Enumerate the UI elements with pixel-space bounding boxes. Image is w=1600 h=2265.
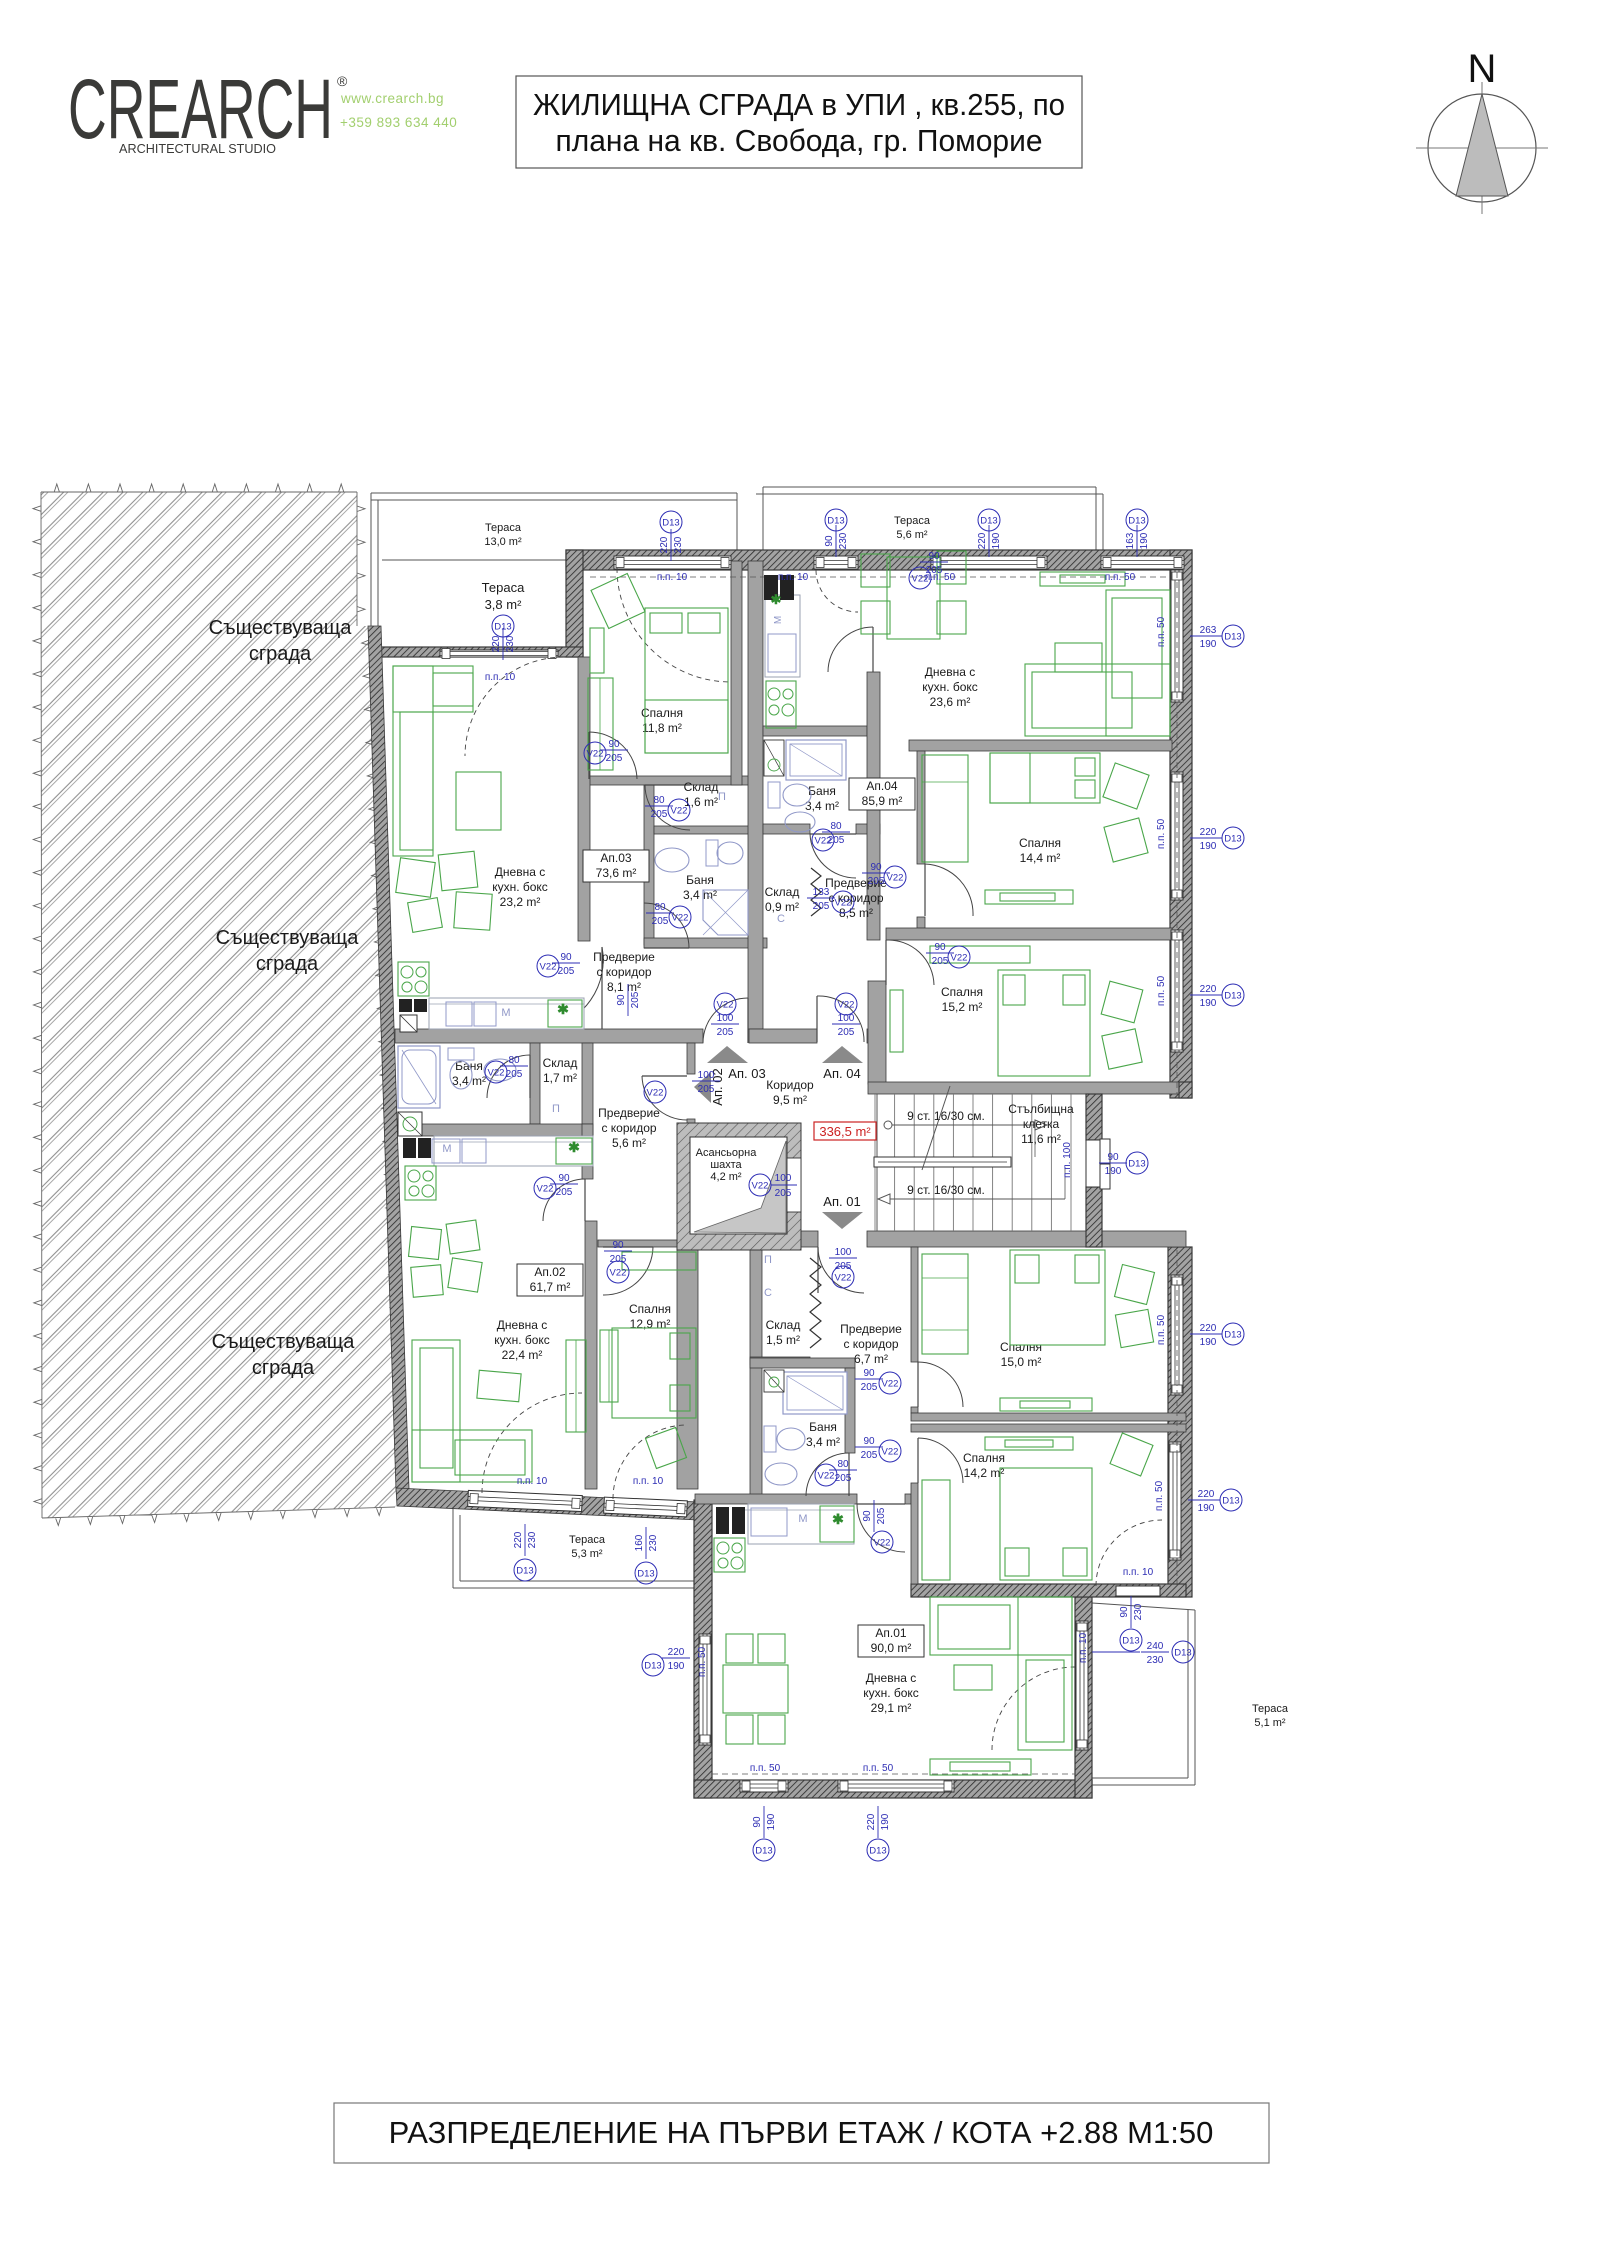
svg-text:D13: D13 — [1122, 1636, 1139, 1647]
svg-text:РАЗПРЕДЕЛЕНИЕ НА ПЪРВИ ЕТАЖ /: РАЗПРЕДЕЛЕНИЕ НА ПЪРВИ ЕТАЖ / КОТА +2.88… — [389, 2115, 1214, 2150]
svg-text:M: M — [798, 1513, 807, 1525]
svg-text:100: 100 — [775, 1173, 792, 1184]
svg-text:220: 220 — [1200, 984, 1217, 995]
svg-text:Съществуваща: Съществуваща — [209, 617, 353, 639]
svg-text:V22: V22 — [882, 1379, 899, 1390]
svg-text:D13: D13 — [1224, 834, 1241, 845]
svg-text:9 ст. 16/30 см.: 9 ст. 16/30 см. — [907, 1109, 985, 1123]
svg-text:90: 90 — [612, 1240, 624, 1251]
svg-text:Спалня: Спалня — [1000, 1340, 1042, 1354]
svg-text:100: 100 — [835, 1247, 852, 1258]
svg-text:3,4 m²: 3,4 m² — [805, 799, 839, 813]
svg-text:11,8 m²: 11,8 m² — [642, 721, 682, 735]
svg-text:1,5 m²: 1,5 m² — [766, 1333, 800, 1347]
svg-text:ЖИЛИЩНА СГРАДА в УПИ , кв.255,: ЖИЛИЩНА СГРАДА в УПИ , кв.255, по — [533, 87, 1065, 122]
svg-text:90: 90 — [558, 1173, 570, 1184]
svg-text:Склад: Склад — [684, 780, 719, 794]
svg-text:73,6 m²: 73,6 m² — [596, 866, 637, 880]
svg-text:205: 205 — [876, 1507, 887, 1524]
svg-text:п.п. 10: п.п. 10 — [778, 572, 809, 583]
svg-text:с коридор: с коридор — [596, 965, 651, 979]
svg-text:5,6 m²: 5,6 m² — [896, 529, 928, 541]
svg-text:205: 205 — [506, 1069, 523, 1080]
svg-text:12,9 m²: 12,9 m² — [630, 1317, 671, 1331]
svg-text:ARCHITECTURAL STUDIO: ARCHITECTURAL STUDIO — [119, 141, 276, 156]
svg-text:11,6 m²: 11,6 m² — [1021, 1132, 1061, 1146]
svg-text:205: 205 — [698, 1084, 715, 1095]
svg-text:шахта: шахта — [710, 1159, 742, 1171]
svg-text:205: 205 — [558, 966, 575, 977]
svg-text:90: 90 — [824, 535, 835, 547]
svg-text:M: M — [442, 1143, 451, 1155]
svg-text:Ап.03: Ап.03 — [600, 851, 632, 865]
svg-text:336,5 m²: 336,5 m² — [819, 1124, 871, 1139]
svg-text:D13: D13 — [516, 1566, 533, 1577]
svg-text:Спалня: Спалня — [629, 1302, 671, 1316]
svg-text:V22: V22 — [912, 574, 929, 585]
svg-text:D13: D13 — [1174, 1648, 1191, 1659]
svg-text:Склад: Склад — [543, 1056, 578, 1070]
svg-text:С: С — [777, 913, 785, 925]
svg-text:Ап. 03: Ап. 03 — [728, 1066, 765, 1081]
svg-text:Ап. 04: Ап. 04 — [823, 1066, 860, 1081]
svg-text:3,8 m²: 3,8 m² — [485, 597, 523, 612]
svg-text:Асансьорна: Асансьорна — [696, 1147, 758, 1159]
svg-text:90: 90 — [934, 942, 946, 953]
svg-text:Предверие: Предверие — [593, 950, 655, 964]
svg-text:190: 190 — [1200, 1337, 1217, 1348]
svg-text:230: 230 — [505, 635, 516, 652]
svg-text:190: 190 — [1105, 1166, 1122, 1177]
svg-text:205: 205 — [652, 916, 669, 927]
svg-text:220: 220 — [659, 536, 670, 553]
svg-text:с коридор: с коридор — [601, 1121, 656, 1135]
svg-text:сграда: сграда — [249, 643, 312, 665]
svg-text:205: 205 — [861, 1450, 878, 1461]
svg-text:230: 230 — [648, 1534, 659, 1551]
svg-text:14,2 m²: 14,2 m² — [964, 1466, 1005, 1480]
svg-text:240: 240 — [1147, 1641, 1164, 1652]
svg-text:Стълбищна: Стълбищна — [1008, 1102, 1074, 1116]
svg-text:13,0 m²: 13,0 m² — [484, 536, 522, 548]
svg-text:V22: V22 — [818, 1471, 835, 1482]
svg-text:230: 230 — [1147, 1655, 1164, 1666]
svg-text:90: 90 — [560, 952, 572, 963]
svg-text:кухн. бокс: кухн. бокс — [863, 1686, 919, 1700]
svg-text:кухн. бокс: кухн. бокс — [922, 680, 978, 694]
svg-text:205: 205 — [630, 991, 641, 1008]
svg-text:230: 230 — [527, 1531, 538, 1548]
svg-text:190: 190 — [1198, 1503, 1215, 1514]
svg-text:V22: V22 — [887, 873, 904, 884]
svg-text:190: 190 — [668, 1661, 685, 1672]
svg-text:M: M — [501, 1007, 510, 1019]
svg-text:220: 220 — [1198, 1489, 1215, 1500]
svg-text:Спалня: Спалня — [941, 985, 983, 999]
svg-text:190: 190 — [1200, 639, 1217, 650]
svg-text:Баня: Баня — [686, 873, 714, 887]
svg-text:230: 230 — [673, 536, 684, 553]
svg-text:сграда: сграда — [256, 953, 319, 975]
svg-text:14,4 m²: 14,4 m² — [1020, 851, 1061, 865]
svg-text:190: 190 — [1139, 532, 1150, 549]
svg-text:V22: V22 — [752, 1181, 769, 1192]
svg-text:V22: V22 — [815, 836, 832, 847]
svg-text:90: 90 — [863, 1368, 875, 1379]
svg-text:Дневна с: Дневна с — [925, 665, 975, 679]
svg-text:1,7 m²: 1,7 m² — [543, 1071, 577, 1085]
svg-text:+359 893 634 440: +359 893 634 440 — [340, 115, 457, 130]
svg-text:V22: V22 — [672, 913, 689, 924]
svg-text:п.п. 50: п.п. 50 — [863, 1763, 894, 1774]
svg-text:80: 80 — [654, 902, 666, 913]
svg-text:133: 133 — [813, 887, 830, 898]
svg-text:п.п. 10: п.п. 10 — [1078, 1632, 1089, 1663]
svg-text:п.п. 50: п.п. 50 — [1105, 572, 1136, 583]
svg-text:5,3 m²: 5,3 m² — [571, 1548, 603, 1560]
svg-text:Баня: Баня — [809, 1420, 837, 1434]
svg-text:✱: ✱ — [557, 1001, 569, 1017]
svg-text:90: 90 — [1119, 1606, 1130, 1618]
svg-text:90: 90 — [1107, 1152, 1119, 1163]
svg-text:п.п. 10: п.п. 10 — [657, 572, 688, 583]
svg-text:Баня: Баня — [808, 784, 836, 798]
svg-text:90: 90 — [608, 739, 620, 750]
svg-text:Ап.01: Ап.01 — [875, 1626, 907, 1640]
svg-text:205: 205 — [717, 1027, 734, 1038]
svg-text:Дневна с: Дневна с — [497, 1318, 547, 1332]
svg-text:230: 230 — [1133, 1603, 1144, 1620]
svg-text:п.п. 50: п.п. 50 — [1156, 975, 1167, 1006]
svg-text:61,7 m²: 61,7 m² — [530, 1280, 571, 1294]
svg-text:205: 205 — [775, 1188, 792, 1199]
svg-text:29,1 m²: 29,1 m² — [871, 1701, 912, 1715]
svg-text:220: 220 — [1200, 1323, 1217, 1334]
svg-text:15,0 m²: 15,0 m² — [1001, 1355, 1042, 1369]
svg-text:M: M — [773, 616, 784, 624]
svg-text:кухн. бокс: кухн. бокс — [492, 880, 548, 894]
svg-text:205: 205 — [813, 901, 830, 912]
svg-text:Дневна с: Дневна с — [495, 865, 545, 879]
svg-text:п.п. 10: п.п. 10 — [517, 1476, 548, 1487]
svg-text:V22: V22 — [671, 806, 688, 817]
svg-text:205: 205 — [868, 876, 885, 887]
svg-text:п.п. 50: п.п. 50 — [750, 1763, 781, 1774]
svg-text:220: 220 — [1200, 827, 1217, 838]
svg-text:П: П — [718, 791, 726, 803]
svg-text:90,0 m²: 90,0 m² — [871, 1641, 912, 1655]
svg-text:✱: ✱ — [832, 1511, 844, 1527]
svg-text:9 ст. 16/30 см.: 9 ст. 16/30 см. — [907, 1183, 985, 1197]
svg-text:220: 220 — [866, 1813, 877, 1830]
svg-text:205: 205 — [838, 1027, 855, 1038]
svg-text:190: 190 — [1200, 998, 1217, 1009]
svg-text:Ап. 01: Ап. 01 — [823, 1194, 860, 1209]
svg-text:П: П — [552, 1103, 560, 1115]
svg-text:3,4 m²: 3,4 m² — [806, 1435, 840, 1449]
svg-text:15,2 m²: 15,2 m² — [942, 1000, 983, 1014]
svg-text:сграда: сграда — [252, 1357, 315, 1379]
svg-text:V22: V22 — [647, 1088, 664, 1099]
svg-text:D13: D13 — [755, 1846, 772, 1857]
svg-text:п.п. 50: п.п. 50 — [1154, 1480, 1165, 1511]
svg-text:D13: D13 — [827, 516, 844, 527]
svg-text:V22: V22 — [835, 1273, 852, 1284]
svg-text:90: 90 — [616, 994, 627, 1006]
svg-text:Склад: Склад — [766, 1318, 801, 1332]
svg-text:190: 190 — [880, 1813, 891, 1830]
svg-text:205: 205 — [861, 1382, 878, 1393]
svg-text:Коридор: Коридор — [766, 1078, 814, 1092]
svg-text:V22: V22 — [610, 1268, 627, 1279]
svg-text:D13: D13 — [644, 1661, 661, 1672]
svg-text:D13: D13 — [1128, 1159, 1145, 1170]
svg-text:6,7 m²: 6,7 m² — [854, 1352, 888, 1366]
svg-text:D13: D13 — [980, 516, 997, 527]
svg-text:85,9 m²: 85,9 m² — [862, 794, 903, 808]
svg-text:Спалня: Спалня — [963, 1451, 1005, 1465]
svg-text:190: 190 — [1200, 841, 1217, 852]
svg-text:Тераса: Тераса — [1252, 1703, 1289, 1715]
svg-text:9,5 m²: 9,5 m² — [773, 1093, 807, 1107]
svg-text:3,4 m²: 3,4 m² — [452, 1074, 486, 1088]
svg-text:Тераса: Тераса — [482, 580, 525, 595]
svg-text:23,6 m²: 23,6 m² — [930, 695, 971, 709]
svg-text:п.п. 10: п.п. 10 — [485, 672, 516, 683]
svg-text:Тераса: Тераса — [894, 515, 931, 527]
svg-text:Тераса: Тераса — [485, 522, 522, 534]
svg-text:D13: D13 — [637, 1569, 654, 1580]
svg-text:V22: V22 — [835, 898, 852, 909]
svg-text:205: 205 — [932, 956, 949, 967]
svg-text:4,2 m²: 4,2 m² — [710, 1171, 742, 1183]
svg-text:160: 160 — [634, 1534, 645, 1551]
svg-text:5,6 m²: 5,6 m² — [612, 1136, 646, 1150]
svg-text:V22: V22 — [838, 1000, 855, 1011]
svg-text:80: 80 — [837, 1459, 849, 1470]
svg-text:D13: D13 — [1222, 1496, 1239, 1507]
svg-text:100: 100 — [698, 1070, 715, 1081]
svg-text:Спалня: Спалня — [641, 706, 683, 720]
svg-text:80: 80 — [508, 1055, 520, 1066]
svg-text:D13: D13 — [1224, 1330, 1241, 1341]
svg-text:220: 220 — [491, 635, 502, 652]
svg-text:190: 190 — [766, 1813, 777, 1830]
svg-text:V22: V22 — [717, 1000, 734, 1011]
svg-text:220: 220 — [668, 1647, 685, 1658]
svg-text:П: П — [764, 1254, 772, 1266]
svg-text:Дневна с: Дневна с — [866, 1671, 916, 1685]
svg-text:90: 90 — [862, 1510, 873, 1522]
svg-text:Предверие: Предверие — [598, 1106, 660, 1120]
svg-text:V22: V22 — [882, 1447, 899, 1458]
svg-text:205: 205 — [556, 1187, 573, 1198]
svg-text:23,2 m²: 23,2 m² — [500, 895, 541, 909]
svg-text:С: С — [764, 1287, 772, 1299]
svg-text:230: 230 — [838, 532, 849, 549]
svg-text:клетка: клетка — [1023, 1117, 1060, 1131]
svg-text:Съществуваща: Съществуваща — [212, 1331, 356, 1353]
svg-text:п.п. 50: п.п. 50 — [697, 1646, 708, 1677]
svg-text:п.п. 50: п.п. 50 — [1156, 818, 1167, 849]
svg-text:90: 90 — [870, 862, 882, 873]
svg-text:0,9 m²: 0,9 m² — [765, 900, 799, 914]
svg-text:90: 90 — [863, 1436, 875, 1447]
svg-text:Ап.04: Ап.04 — [866, 779, 898, 793]
svg-text:Предверие: Предверие — [840, 1322, 902, 1336]
svg-text:163: 163 — [1125, 532, 1136, 549]
svg-text:Склад: Склад — [765, 885, 800, 899]
svg-text:✱: ✱ — [568, 1139, 580, 1155]
svg-text:V22: V22 — [587, 749, 604, 760]
svg-text:Спалня: Спалня — [1019, 836, 1061, 850]
svg-text:D13: D13 — [1224, 632, 1241, 643]
svg-text:п.п. 50: п.п. 50 — [1156, 616, 1167, 647]
svg-text:D13: D13 — [1128, 516, 1145, 527]
svg-text:D13: D13 — [662, 518, 679, 529]
svg-text:205: 205 — [651, 809, 668, 820]
svg-text:90: 90 — [752, 1816, 763, 1828]
svg-text:кухн. бокс: кухн. бокс — [494, 1333, 550, 1347]
svg-text:плана на кв. Свобода, гр. Помо: плана на кв. Свобода, гр. Поморие — [556, 123, 1043, 158]
svg-text:90: 90 — [928, 551, 940, 562]
svg-text:Съществуваща: Съществуваща — [216, 927, 360, 949]
svg-text:п.п. 100: п.п. 100 — [1062, 1142, 1073, 1178]
svg-text:V22: V22 — [874, 1538, 891, 1549]
svg-text:22,4 m²: 22,4 m² — [502, 1348, 543, 1362]
svg-text:205: 205 — [606, 753, 623, 764]
svg-text:220: 220 — [977, 532, 988, 549]
svg-text:V22: V22 — [537, 1184, 554, 1195]
svg-text:V22: V22 — [540, 962, 557, 973]
svg-text:263: 263 — [1200, 625, 1217, 636]
svg-text:Ап.02: Ап.02 — [534, 1265, 566, 1279]
svg-text:Тераса: Тераса — [569, 1534, 606, 1546]
svg-text:✱: ✱ — [771, 592, 782, 607]
svg-text:с коридор: с коридор — [843, 1337, 898, 1351]
svg-text:5,1 m²: 5,1 m² — [1254, 1717, 1286, 1729]
svg-text:®: ® — [337, 73, 348, 89]
svg-text:V22: V22 — [488, 1068, 505, 1079]
svg-text:www.crearch.bg: www.crearch.bg — [340, 91, 444, 106]
svg-text:п.п. 10: п.п. 10 — [1123, 1567, 1154, 1578]
svg-text:V22: V22 — [951, 953, 968, 964]
svg-text:80: 80 — [830, 821, 842, 832]
svg-text:п.п. 50: п.п. 50 — [1156, 1314, 1167, 1345]
svg-text:п.п. 10: п.п. 10 — [633, 1476, 664, 1487]
svg-text:190: 190 — [991, 532, 1002, 549]
svg-text:D13: D13 — [1224, 991, 1241, 1002]
svg-text:D13: D13 — [869, 1846, 886, 1857]
svg-text:220: 220 — [513, 1531, 524, 1548]
svg-text:80: 80 — [653, 795, 665, 806]
